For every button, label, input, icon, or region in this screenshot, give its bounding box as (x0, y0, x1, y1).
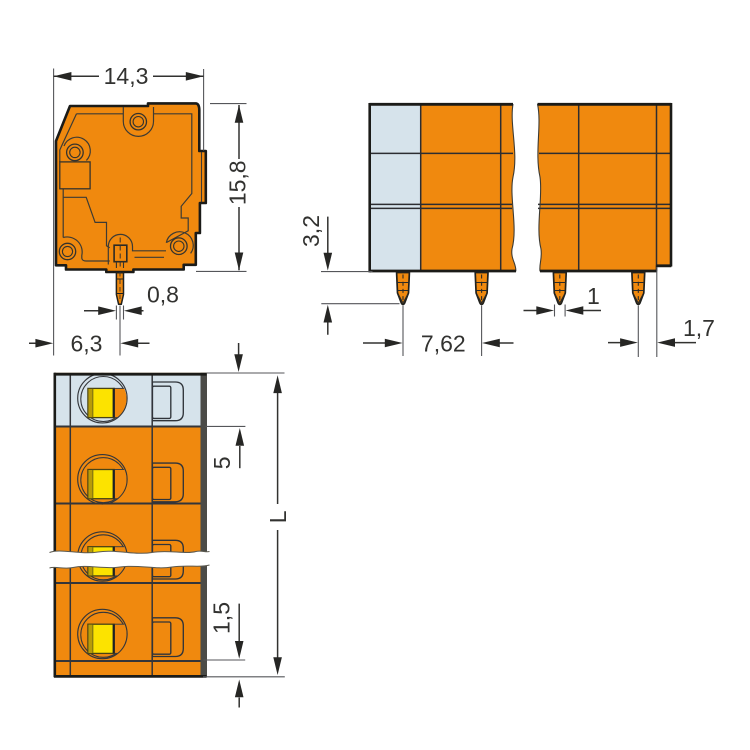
svg-text:0,8: 0,8 (147, 282, 179, 308)
svg-text:14,3: 14,3 (104, 63, 149, 89)
svg-text:5: 5 (209, 456, 235, 469)
svg-text:1,7: 1,7 (683, 315, 715, 341)
svg-text:1: 1 (587, 283, 600, 309)
svg-text:7,62: 7,62 (421, 331, 466, 357)
svg-text:1,5: 1,5 (209, 602, 235, 634)
svg-text:3,2: 3,2 (298, 215, 324, 247)
svg-text:L: L (265, 510, 291, 523)
svg-text:6,3: 6,3 (71, 331, 103, 357)
svg-text:15,8: 15,8 (225, 160, 251, 205)
